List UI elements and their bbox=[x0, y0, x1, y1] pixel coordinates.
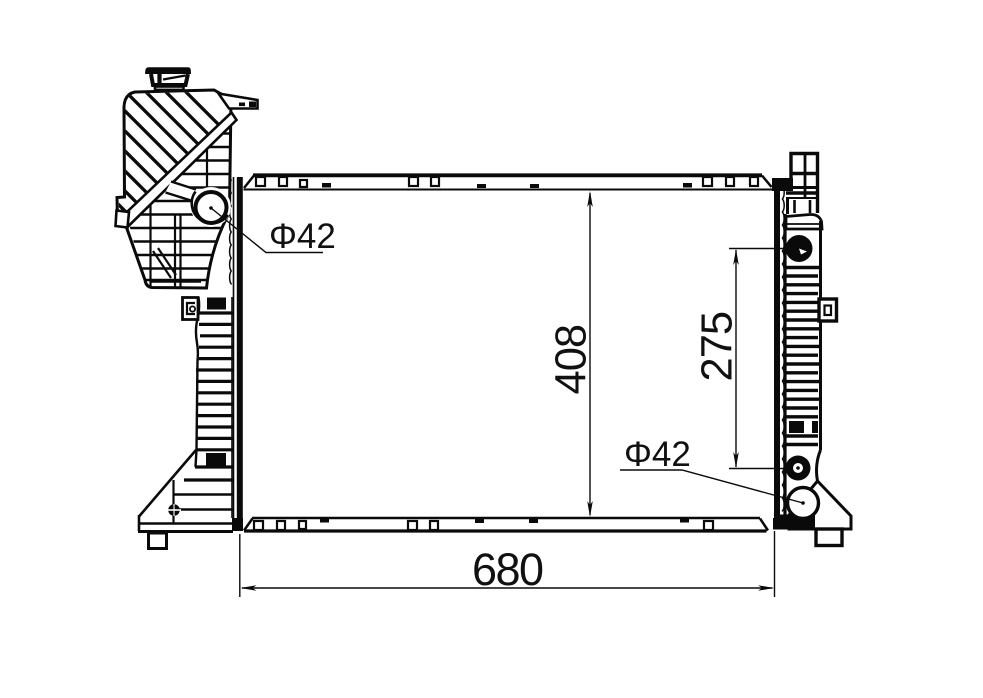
svg-text:275: 275 bbox=[694, 312, 742, 382]
svg-text:408: 408 bbox=[548, 325, 596, 395]
svg-text:Φ42: Φ42 bbox=[269, 217, 336, 256]
svg-text:680: 680 bbox=[472, 544, 543, 595]
svg-text:Φ42: Φ42 bbox=[624, 435, 691, 474]
